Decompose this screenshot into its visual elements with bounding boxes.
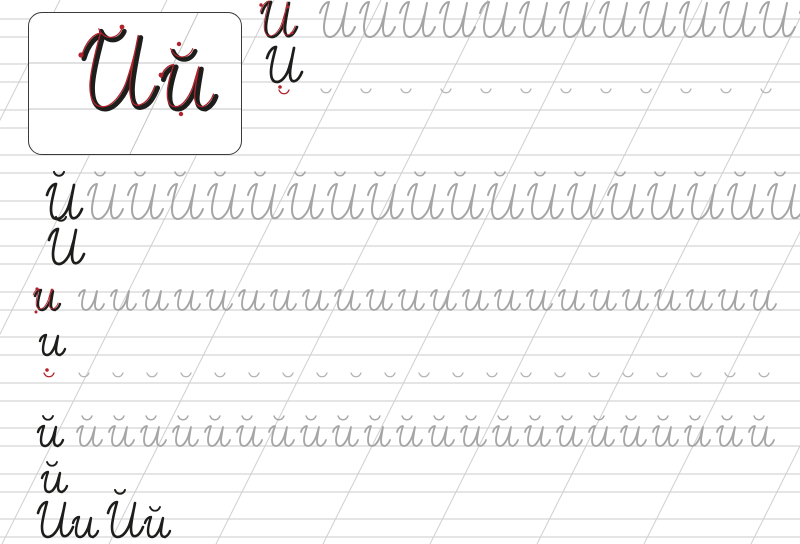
trace-letter <box>239 290 264 310</box>
trace-letter <box>269 426 294 446</box>
model-breve <box>279 90 289 94</box>
breve-mark <box>623 373 633 377</box>
trace-letter <box>77 426 102 446</box>
trace-letter-breve <box>754 416 764 420</box>
trace-letter <box>717 426 742 446</box>
breve-mark <box>759 373 769 377</box>
trace-letter-breve <box>658 416 668 420</box>
trace-letter <box>143 290 168 310</box>
trace-letter <box>493 426 518 446</box>
trace-letter <box>397 426 422 446</box>
breve-mark <box>641 89 651 93</box>
trace-letter-breve <box>82 416 92 420</box>
trace-letter <box>333 426 358 446</box>
trace-letter <box>559 290 584 310</box>
card-slant-guide <box>129 13 198 155</box>
letter-card <box>28 12 242 155</box>
breve-mark <box>113 373 123 377</box>
trace-letter <box>301 426 326 446</box>
trace-letter <box>719 290 744 310</box>
breve-mark <box>589 373 599 377</box>
breve-mark <box>147 373 157 377</box>
breve-mark <box>453 373 463 377</box>
breve-mark <box>725 373 735 377</box>
red-start-dot <box>291 32 294 35</box>
breve-mark <box>561 89 571 93</box>
model-letter <box>40 335 65 355</box>
trace-letter <box>109 426 134 446</box>
trace-letter <box>141 426 166 446</box>
trace-letter-breve <box>178 416 188 420</box>
trace-letter-breve <box>146 416 156 420</box>
trace-letter-breve <box>434 416 444 420</box>
card-red-arrow <box>141 52 149 61</box>
breve-mark <box>555 373 565 377</box>
breve-mark <box>215 373 225 377</box>
trace-letter-breve <box>370 416 380 420</box>
card-red-start-dot <box>179 112 183 116</box>
trace-letter <box>623 290 648 310</box>
trace-letter <box>655 290 680 310</box>
trace-letter <box>207 290 232 310</box>
trace-letter-breve <box>466 416 476 420</box>
trace-letter-breve <box>690 416 700 420</box>
model-letter <box>42 472 67 492</box>
model-letter <box>73 517 98 537</box>
breve-mark <box>249 373 259 377</box>
trace-letter <box>557 426 582 446</box>
breve-mark <box>419 373 429 377</box>
trace-letter <box>461 426 486 446</box>
trace-letter-breve <box>210 416 220 420</box>
trace-letter <box>525 426 550 446</box>
trace-letter <box>589 426 614 446</box>
trace-letter-breve <box>626 416 636 420</box>
breve-mark <box>321 89 331 93</box>
card-red-start-dot <box>78 52 83 57</box>
breve-mark <box>521 89 531 93</box>
model-letter <box>145 517 170 537</box>
red-start-dot <box>45 368 49 372</box>
trace-letter <box>175 290 200 310</box>
trace-letter <box>79 290 104 310</box>
trace-letter-breve <box>306 416 316 420</box>
trace-letter-breve <box>498 416 508 420</box>
card-red-arrow <box>110 70 118 79</box>
breve-mark <box>317 373 327 377</box>
trace-letter-breve <box>114 416 124 420</box>
breve-mark <box>601 89 611 93</box>
trace-letter <box>303 290 328 310</box>
trace-letter <box>621 426 646 446</box>
card-red-start-dot <box>177 42 181 46</box>
breve-mark <box>481 89 491 93</box>
card-model-letter <box>84 36 158 110</box>
trace-letter-breve <box>402 416 412 420</box>
red-start-dot <box>35 287 38 290</box>
trace-letter-breve <box>242 416 252 420</box>
card-red-arrow <box>185 80 193 89</box>
breve-mark <box>385 373 395 377</box>
trace-letter <box>429 426 454 446</box>
model-letter-breve <box>150 507 160 511</box>
red-start-dot <box>51 289 54 292</box>
trace-letter <box>431 290 456 310</box>
breve-mark <box>181 373 191 377</box>
breve-mark <box>487 373 497 377</box>
card-red-start-dot <box>159 73 164 78</box>
breve-mark <box>401 89 411 93</box>
trace-letter-breve <box>594 416 604 420</box>
trace-letter <box>495 290 520 310</box>
breve-mark <box>521 373 531 377</box>
breve-mark <box>721 89 731 93</box>
red-start-dot <box>287 6 290 9</box>
trace-letter <box>237 426 262 446</box>
trace-letter <box>653 426 678 446</box>
worksheet-page <box>0 0 800 544</box>
model-letter-breve <box>43 416 53 420</box>
breve-mark <box>761 89 771 93</box>
trace-letter <box>463 290 488 310</box>
trace-letter <box>205 426 230 446</box>
red-start-dot <box>35 311 38 314</box>
trace-letter <box>335 290 360 310</box>
trace-letter <box>751 290 776 310</box>
trace-letter <box>271 290 296 310</box>
breve-mark <box>351 373 361 377</box>
red-start-dot <box>278 85 282 89</box>
trace-letter-breve <box>338 416 348 420</box>
trace-letter-breve <box>722 416 732 420</box>
card-letters <box>29 13 242 155</box>
red-start-dot <box>259 3 262 6</box>
breve-mark <box>681 89 691 93</box>
breve-mark <box>691 373 701 377</box>
trace-letter <box>367 290 392 310</box>
trace-letter <box>591 290 616 310</box>
trace-letter <box>173 426 198 446</box>
card-red-start-dot <box>120 25 125 30</box>
model-breve <box>44 373 54 377</box>
trace-letter-breve <box>530 416 540 420</box>
trace-letter-breve <box>562 416 572 420</box>
trace-letter <box>399 290 424 310</box>
breve-mark <box>283 373 293 377</box>
breve-mark <box>441 89 451 93</box>
breve-mark <box>657 373 667 377</box>
trace-letter <box>687 290 712 310</box>
breve-mark <box>361 89 371 93</box>
trace-letter <box>749 426 774 446</box>
model-letter-breve <box>47 462 57 466</box>
